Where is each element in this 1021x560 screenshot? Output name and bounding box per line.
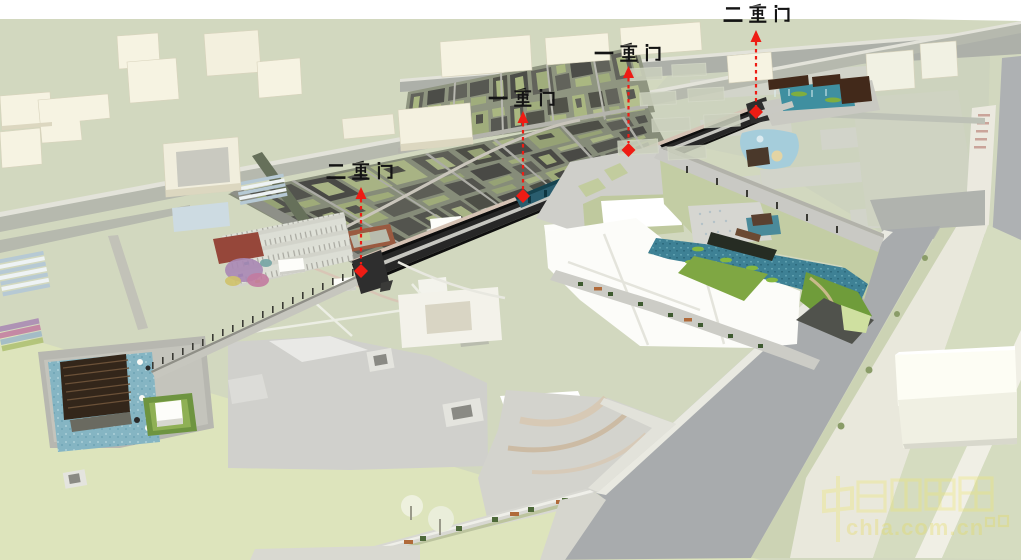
svg-text:chla.com.cn: chla.com.cn [846, 515, 984, 540]
